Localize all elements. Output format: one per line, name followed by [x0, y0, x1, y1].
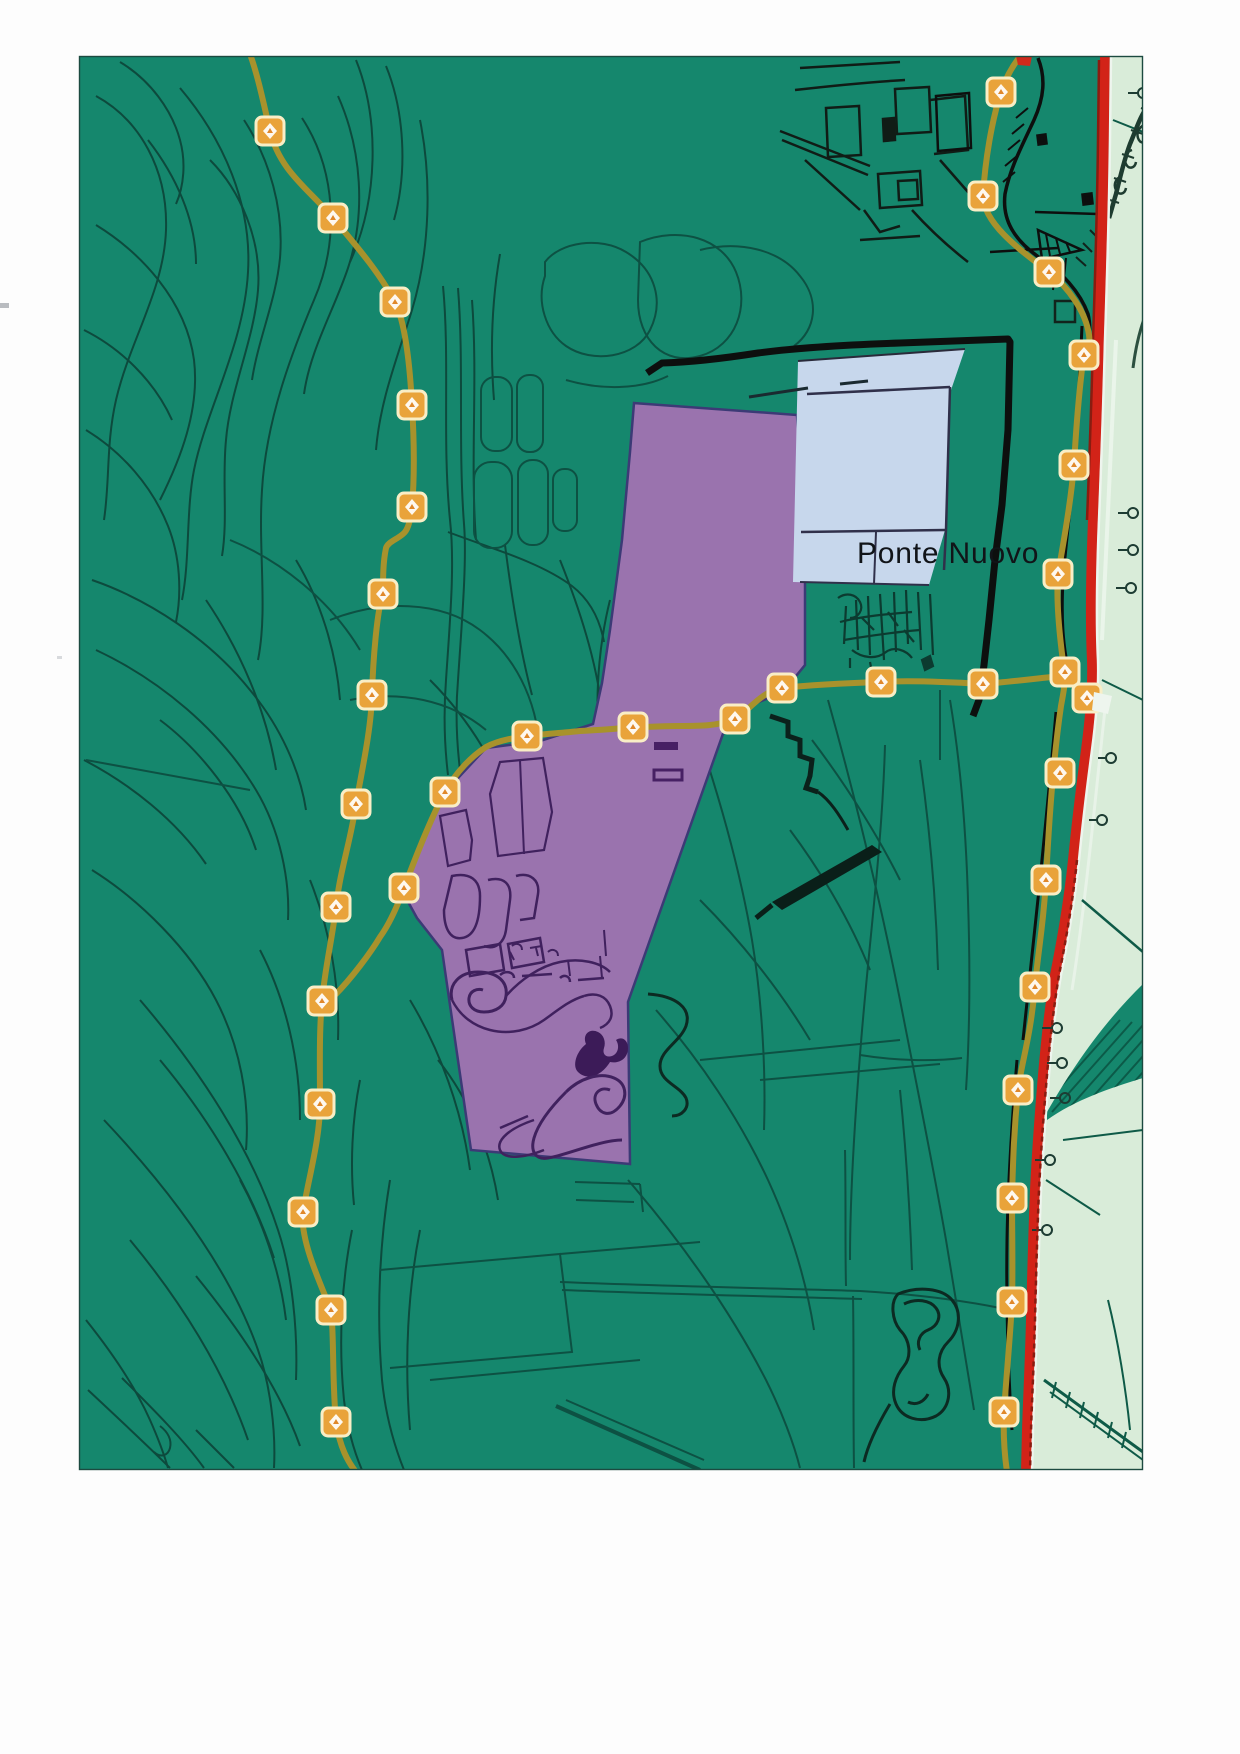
svg-text:Ponte Nuovo: Ponte Nuovo [857, 537, 1039, 570]
